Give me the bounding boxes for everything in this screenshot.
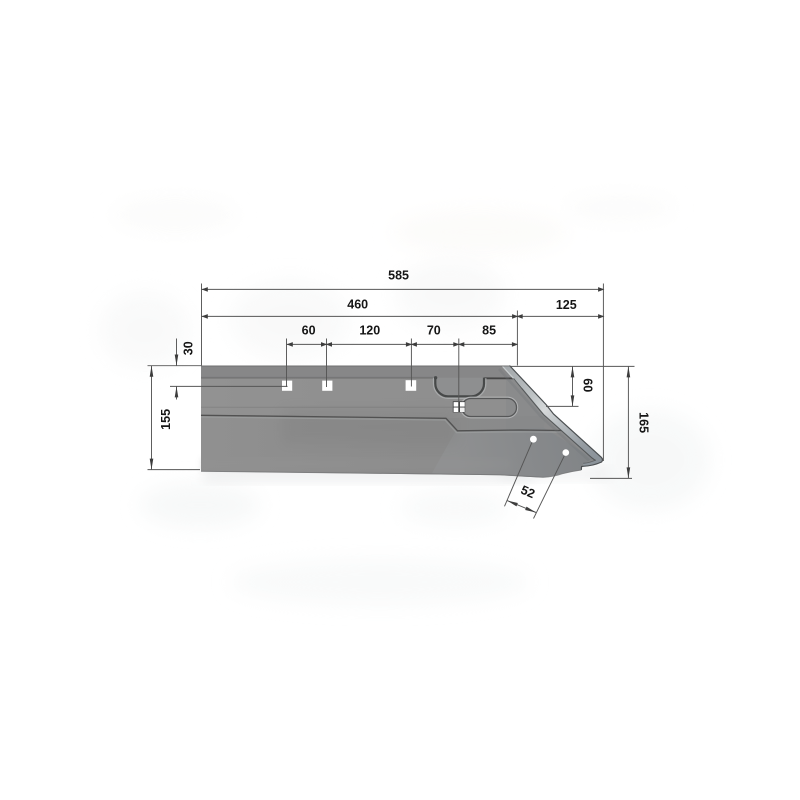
svg-text:165: 165 [636, 412, 650, 433]
svg-text:85: 85 [482, 324, 496, 338]
svg-text:30: 30 [181, 341, 195, 355]
svg-text:70: 70 [427, 324, 441, 338]
svg-text:585: 585 [388, 268, 409, 282]
svg-text:125: 125 [556, 298, 577, 312]
svg-text:155: 155 [159, 409, 173, 430]
svg-text:60: 60 [302, 324, 316, 338]
svg-text:60: 60 [581, 378, 595, 392]
svg-text:120: 120 [359, 324, 380, 338]
svg-text:460: 460 [347, 297, 368, 311]
